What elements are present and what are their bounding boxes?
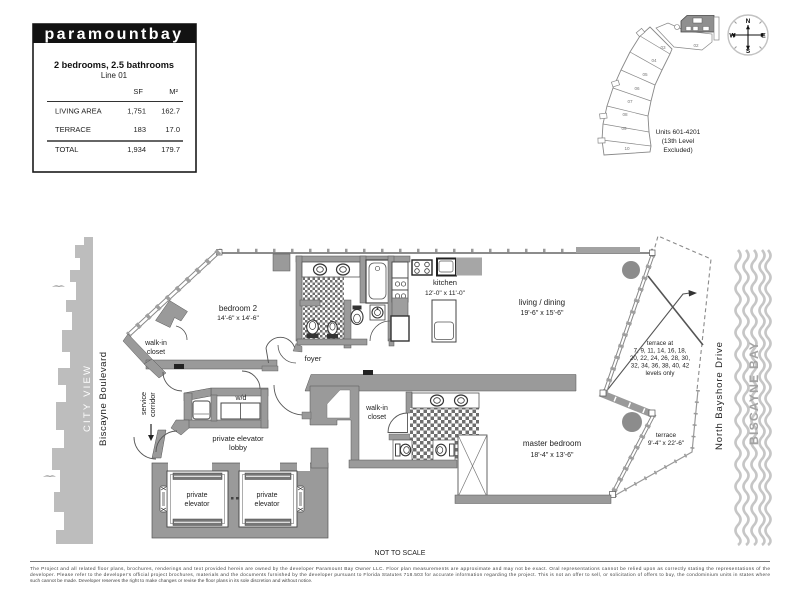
svg-text:closet: closet — [368, 414, 386, 421]
svg-text:paramountbay: paramountbay — [44, 26, 183, 43]
svg-text:03: 03 — [660, 45, 666, 50]
svg-text:SF: SF — [133, 87, 143, 96]
svg-text:developer. Please refer to th: developer. Please refer to the developer… — [30, 572, 770, 578]
svg-text:1,751: 1,751 — [127, 107, 146, 116]
svg-text:18'-4" x 13'-6": 18'-4" x 13'-6" — [530, 452, 574, 459]
svg-text:closet: closet — [147, 349, 165, 356]
svg-text:North Bayshore Drive: North Bayshore Drive — [714, 341, 725, 450]
svg-text:bedroom 2: bedroom 2 — [219, 304, 258, 313]
svg-text:CITY VIEW: CITY VIEW — [82, 364, 93, 432]
svg-text:service: service — [139, 392, 148, 415]
svg-text:04: 04 — [651, 58, 657, 63]
svg-text:S: S — [746, 48, 751, 55]
svg-text:living / dining: living / dining — [519, 298, 565, 307]
svg-text:Units 601-4201: Units 601-4201 — [656, 129, 701, 136]
svg-text:The Project and all related fl: The Project and all related floor plans,… — [30, 566, 770, 572]
svg-text:14'-6" x 14'-6": 14'-6" x 14'-6" — [217, 315, 259, 322]
svg-text:Excluded): Excluded) — [663, 147, 692, 154]
svg-text:9'-4" x 22'-6": 9'-4" x 22'-6" — [648, 440, 685, 447]
svg-text:(13th Level: (13th Level — [662, 138, 695, 145]
svg-text:M²: M² — [169, 87, 178, 96]
svg-text:07: 07 — [627, 99, 633, 104]
svg-text:LIVING AREA: LIVING AREA — [55, 107, 102, 116]
svg-text:w/d: w/d — [235, 395, 247, 402]
svg-text:private elevator: private elevator — [212, 434, 264, 443]
svg-text:walk-in: walk-in — [365, 405, 388, 412]
svg-text:183: 183 — [133, 125, 146, 134]
svg-text:W: W — [729, 33, 736, 40]
svg-text:08: 08 — [622, 112, 628, 117]
svg-text:corridor: corridor — [148, 392, 157, 417]
svg-text:lobby: lobby — [229, 443, 247, 452]
svg-text:terrace at: terrace at — [647, 340, 673, 347]
svg-text:06: 06 — [634, 86, 640, 91]
svg-text:02: 02 — [693, 43, 699, 48]
svg-text:32, 34, 36, 38, 40, 42: 32, 34, 36, 38, 40, 42 — [631, 363, 690, 370]
svg-text:kitchen: kitchen — [433, 278, 457, 287]
svg-text:2 bedrooms, 2.5 bathrooms: 2 bedrooms, 2.5 bathrooms — [54, 60, 174, 70]
svg-text:elevator: elevator — [185, 501, 211, 508]
svg-text:walk-in: walk-in — [144, 340, 167, 347]
svg-text:12'-0" x 11'-0": 12'-0" x 11'-0" — [425, 290, 466, 297]
svg-text:Line 01: Line 01 — [101, 71, 128, 80]
svg-text:TERRACE: TERRACE — [55, 125, 91, 134]
svg-text:09: 09 — [621, 126, 627, 131]
svg-text:TOTAL: TOTAL — [55, 145, 78, 154]
svg-text:Biscayne Boulevard: Biscayne Boulevard — [98, 351, 109, 446]
svg-text:levels only: levels only — [646, 370, 676, 377]
svg-text:elevator: elevator — [255, 501, 281, 508]
svg-text:05: 05 — [642, 72, 648, 77]
svg-text:NOT TO SCALE: NOT TO SCALE — [375, 550, 426, 557]
svg-text:17.0: 17.0 — [165, 125, 180, 134]
svg-text:20, 22, 24, 26, 28, 30,: 20, 22, 24, 26, 28, 30, — [630, 355, 690, 362]
svg-text:162.7: 162.7 — [161, 107, 180, 116]
svg-text:E: E — [761, 33, 766, 40]
svg-text:private: private — [186, 492, 207, 499]
svg-text:179.7: 179.7 — [161, 145, 180, 154]
svg-text:master bedroom: master bedroom — [523, 439, 582, 448]
svg-text:BISCAYNE BAY: BISCAYNE BAY — [747, 341, 761, 445]
svg-text:private: private — [256, 492, 277, 499]
svg-text:10: 10 — [624, 146, 630, 151]
svg-text:1,934: 1,934 — [127, 145, 146, 154]
svg-text:19'-6" x 15'-6": 19'-6" x 15'-6" — [520, 310, 564, 317]
svg-text:such cannot be made. Develope: such cannot be made. Developer reserves … — [30, 578, 312, 584]
svg-text:foyer: foyer — [305, 354, 322, 363]
svg-text:7, 9, 11, 14, 16, 18,: 7, 9, 11, 14, 16, 18, — [634, 348, 687, 355]
svg-text:N: N — [746, 18, 751, 25]
svg-text:terrace: terrace — [656, 432, 677, 439]
